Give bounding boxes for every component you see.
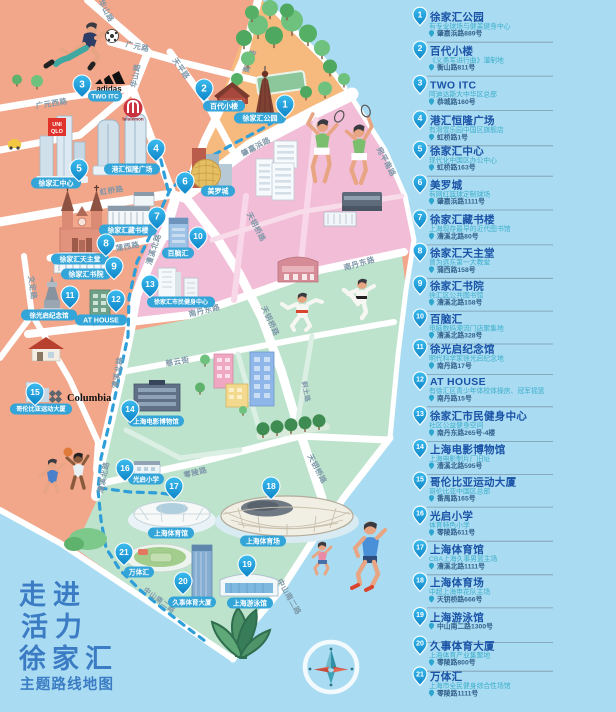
- svg-text:徐光启纪念馆: 徐光启纪念馆: [29, 310, 70, 319]
- svg-text:南丹路17号: 南丹路17号: [437, 361, 472, 370]
- svg-text:QLO: QLO: [51, 129, 64, 135]
- svg-text:漕溪北路595号: 漕溪北路595号: [437, 461, 483, 470]
- svg-text:现代化中国区办公中心: 现代化中国区办公中心: [429, 156, 497, 165]
- svg-text:21: 21: [416, 671, 424, 678]
- svg-text:百脑汇: 百脑汇: [168, 249, 189, 258]
- svg-text:上海电影博物馆: 上海电影博物馆: [133, 416, 179, 425]
- svg-text:3: 3: [79, 80, 85, 91]
- svg-text:徐光启纪念馆: 徐光启纪念馆: [429, 343, 495, 356]
- svg-text:9: 9: [418, 278, 423, 288]
- svg-text:2: 2: [418, 43, 423, 53]
- svg-text:7: 7: [154, 212, 160, 223]
- svg-text:漕溪北路158号: 漕溪北路158号: [437, 298, 483, 307]
- svg-text:15: 15: [30, 387, 40, 397]
- svg-text:活力: 活力: [21, 612, 89, 642]
- svg-text:上海电影博物馆: 上海电影博物馆: [430, 443, 506, 456]
- svg-text:18: 18: [266, 481, 276, 491]
- svg-text:明代科学家徐光启纪念地: 明代科学家徐光启纪念地: [429, 354, 504, 363]
- svg-text:8: 8: [103, 239, 109, 250]
- svg-text:有徐汇区青少年体校体操房、冠军摇篮: 有徐汇区青少年体校体操房、冠军摇篮: [429, 386, 545, 395]
- svg-text:5: 5: [418, 143, 423, 153]
- svg-text:10: 10: [193, 231, 203, 241]
- svg-text:百脑汇: 百脑汇: [430, 312, 463, 325]
- svg-text:衡山路811号: 衡山路811号: [437, 63, 475, 72]
- svg-text:11: 11: [66, 290, 75, 300]
- svg-text:上海体育产业集聚地: 上海体育产业集聚地: [429, 651, 490, 660]
- svg-text:12: 12: [111, 294, 121, 304]
- svg-text:上海游泳馆: 上海游泳馆: [430, 611, 484, 624]
- svg-text:曾为远东第一大教堂: 曾为远东第一大教堂: [429, 258, 490, 267]
- svg-text:蒲西路158号: 蒲西路158号: [437, 265, 476, 274]
- svg-text:徐家汇书院: 徐家汇书院: [68, 270, 104, 279]
- svg-text:恭城路160号: 恭城路160号: [436, 97, 476, 106]
- svg-text:港汇恒隆广场: 港汇恒隆广场: [112, 164, 153, 173]
- svg-text:万体汇: 万体汇: [429, 670, 463, 683]
- svg-text:徐家汇市民健身中心: 徐家汇市民健身中心: [153, 298, 208, 306]
- svg-text:南丹路15号: 南丹路15号: [437, 393, 472, 402]
- svg-text:美罗城: 美罗城: [208, 187, 229, 196]
- svg-text:徐家汇中心: 徐家汇中心: [38, 179, 74, 188]
- svg-text:上海市全民健身综合性场馆: 上海市全民健身综合性场馆: [429, 681, 511, 690]
- svg-text:徐家汇天主堂: 徐家汇天主堂: [429, 247, 495, 260]
- svg-text:徐汇区公共图书馆: 徐汇区公共图书馆: [429, 290, 484, 299]
- svg-text:漕溪北路80号: 漕溪北路80号: [437, 231, 479, 240]
- svg-text:中山南二路1300号: 中山南二路1300号: [437, 621, 493, 630]
- svg-text:虹桥路1号: 虹桥路1号: [437, 132, 468, 141]
- svg-text:社区公益健身空间: 社区公益健身空间: [429, 421, 484, 430]
- svg-text:上海体育场: 上海体育场: [246, 536, 280, 545]
- svg-text:上海体育场: 上海体育场: [430, 576, 484, 589]
- svg-text:16: 16: [416, 511, 424, 518]
- svg-text:有网红篮球定制球场: 有网红篮球定制球场: [429, 189, 490, 198]
- svg-text:漕溪北路328号: 漕溪北路328号: [437, 331, 483, 340]
- svg-text:上海体育馆: 上海体育馆: [154, 528, 188, 537]
- svg-text:3: 3: [418, 78, 423, 88]
- svg-text:美罗城: 美罗城: [430, 178, 463, 191]
- svg-text:15: 15: [416, 477, 424, 484]
- svg-text:港汇恒隆广场: 港汇恒隆广场: [430, 114, 495, 127]
- svg-text:徐家汇藏书楼: 徐家汇藏书楼: [107, 225, 149, 234]
- svg-text:零陵路611号: 零陵路611号: [436, 528, 475, 537]
- svg-text:Columbia: Columbia: [67, 393, 112, 404]
- svg-text:徐家汇公园: 徐家汇公园: [429, 11, 484, 24]
- svg-text:徐家汇市民健身中心: 徐家汇市民健身中心: [429, 410, 527, 423]
- svg-text:久事体育大厦: 久事体育大厦: [429, 640, 495, 653]
- svg-text:上海游泳馆: 上海游泳馆: [233, 598, 267, 607]
- svg-text:2: 2: [201, 84, 207, 95]
- svg-text:6: 6: [182, 177, 188, 188]
- svg-text:徐家汇: 徐家汇: [18, 643, 118, 674]
- svg-text:零陵路1111号: 零陵路1111号: [436, 688, 478, 697]
- svg-text:7: 7: [418, 212, 423, 222]
- svg-text:17: 17: [416, 544, 424, 551]
- svg-text:哥伦比亚运动大厦: 哥伦比亚运动大厦: [16, 405, 66, 413]
- svg-text:lululemon: lululemon: [122, 117, 144, 122]
- svg-text:南丹东路265号-4楼: 南丹东路265号-4楼: [437, 428, 495, 437]
- svg-text:5: 5: [76, 164, 82, 175]
- svg-text:百代小楼: 百代小楼: [430, 44, 473, 57]
- svg-text:哥伦比亚中国区总部: 哥伦比亚中国区总部: [429, 486, 490, 495]
- svg-text:4: 4: [153, 144, 159, 155]
- svg-text:天钥桥路666号: 天钥桥路666号: [437, 594, 483, 603]
- svg-text:上海电影制片厂旧址: 上海电影制片厂旧址: [429, 454, 490, 463]
- svg-text:CBA上海久事男篮主场: CBA上海久事男篮主场: [429, 554, 498, 563]
- svg-text:徐家汇藏书楼: 徐家汇藏书楼: [429, 213, 495, 226]
- svg-text:走进: 走进: [19, 580, 87, 610]
- svg-text:13: 13: [145, 279, 155, 289]
- svg-text:零陵路800号: 零陵路800号: [436, 658, 476, 667]
- svg-text:1: 1: [418, 9, 423, 19]
- svg-text:20: 20: [416, 641, 424, 648]
- svg-text:6: 6: [418, 177, 423, 187]
- svg-text:体育特色小学: 体育特色小学: [429, 521, 470, 530]
- svg-text:14: 14: [125, 404, 135, 414]
- svg-text:徐家汇书院: 徐家汇书院: [429, 279, 484, 292]
- svg-text:番禺路165号: 番禺路165号: [436, 494, 476, 503]
- svg-text:1: 1: [282, 100, 288, 111]
- svg-text:21: 21: [119, 547, 129, 557]
- svg-text:16: 16: [120, 463, 130, 473]
- svg-text:万体汇: 万体汇: [128, 567, 150, 576]
- svg-text:哥伦比亚运动大厦: 哥伦比亚运动大厦: [430, 475, 517, 488]
- svg-text:20: 20: [178, 576, 188, 586]
- svg-text:上海体育馆: 上海体育馆: [430, 543, 484, 556]
- svg-text:12: 12: [416, 376, 424, 383]
- svg-text:光启小学: 光启小学: [132, 474, 160, 483]
- svg-text:17: 17: [169, 481, 179, 491]
- svg-text:有滑雪乐园中国区旗舰店: 有滑雪乐园中国区旗舰店: [429, 125, 504, 134]
- svg-text:AT HOUSE: AT HOUSE: [83, 318, 119, 325]
- svg-text:百代小楼: 百代小楼: [210, 102, 238, 111]
- svg-text:阿迪达斯大中华区总部: 阿迪达斯大中华区总部: [429, 90, 497, 99]
- svg-text:徐家汇中心: 徐家汇中心: [429, 145, 484, 158]
- svg-text:中超上海申花队主场: 中超上海申花队主场: [429, 587, 490, 596]
- svg-text:19: 19: [416, 612, 424, 619]
- svg-text:虹桥路163号: 虹桥路163号: [437, 163, 476, 172]
- svg-text:AT HOUSE: AT HOUSE: [430, 376, 486, 388]
- svg-text:11: 11: [416, 344, 424, 351]
- svg-text:有专业球场与健美健身中心: 有专业球场与健美健身中心: [429, 22, 511, 31]
- svg-text:UNI: UNI: [52, 122, 62, 128]
- svg-text:TWO ITC: TWO ITC: [91, 93, 119, 100]
- svg-text:9: 9: [111, 262, 117, 273]
- svg-text:徐家汇公园: 徐家汇公园: [242, 114, 278, 123]
- svg-text:4: 4: [418, 113, 423, 123]
- svg-text:久事体育大厦: 久事体育大厦: [173, 597, 213, 606]
- svg-text:8: 8: [418, 245, 423, 255]
- svg-text:14: 14: [416, 444, 424, 451]
- svg-text:13: 13: [416, 411, 424, 418]
- svg-text:10: 10: [416, 314, 424, 321]
- svg-text:电脑数码潮流门店聚集地: 电脑数码潮流门店聚集地: [429, 323, 504, 332]
- svg-text:TWO ITC: TWO ITC: [430, 80, 477, 92]
- svg-text:上海现存最早的近代图书馆: 上海现存最早的近代图书馆: [429, 224, 511, 233]
- svg-text:主题路线地图: 主题路线地图: [20, 675, 114, 693]
- svg-text:光启小学: 光启小学: [429, 510, 473, 523]
- svg-text:肇嘉浜路1111号: 肇嘉浜路1111号: [436, 197, 485, 206]
- svg-text:徐家汇天主堂: 徐家汇天主堂: [59, 254, 101, 263]
- svg-text:19: 19: [242, 559, 252, 569]
- svg-text:漕溪北路1111号: 漕溪北路1111号: [437, 561, 485, 570]
- svg-text:肇嘉浜路889号: 肇嘉浜路889号: [436, 29, 483, 38]
- svg-text:《义勇军进行曲》灌制地: 《义勇军进行曲》灌制地: [429, 55, 504, 64]
- svg-text:18: 18: [416, 577, 424, 584]
